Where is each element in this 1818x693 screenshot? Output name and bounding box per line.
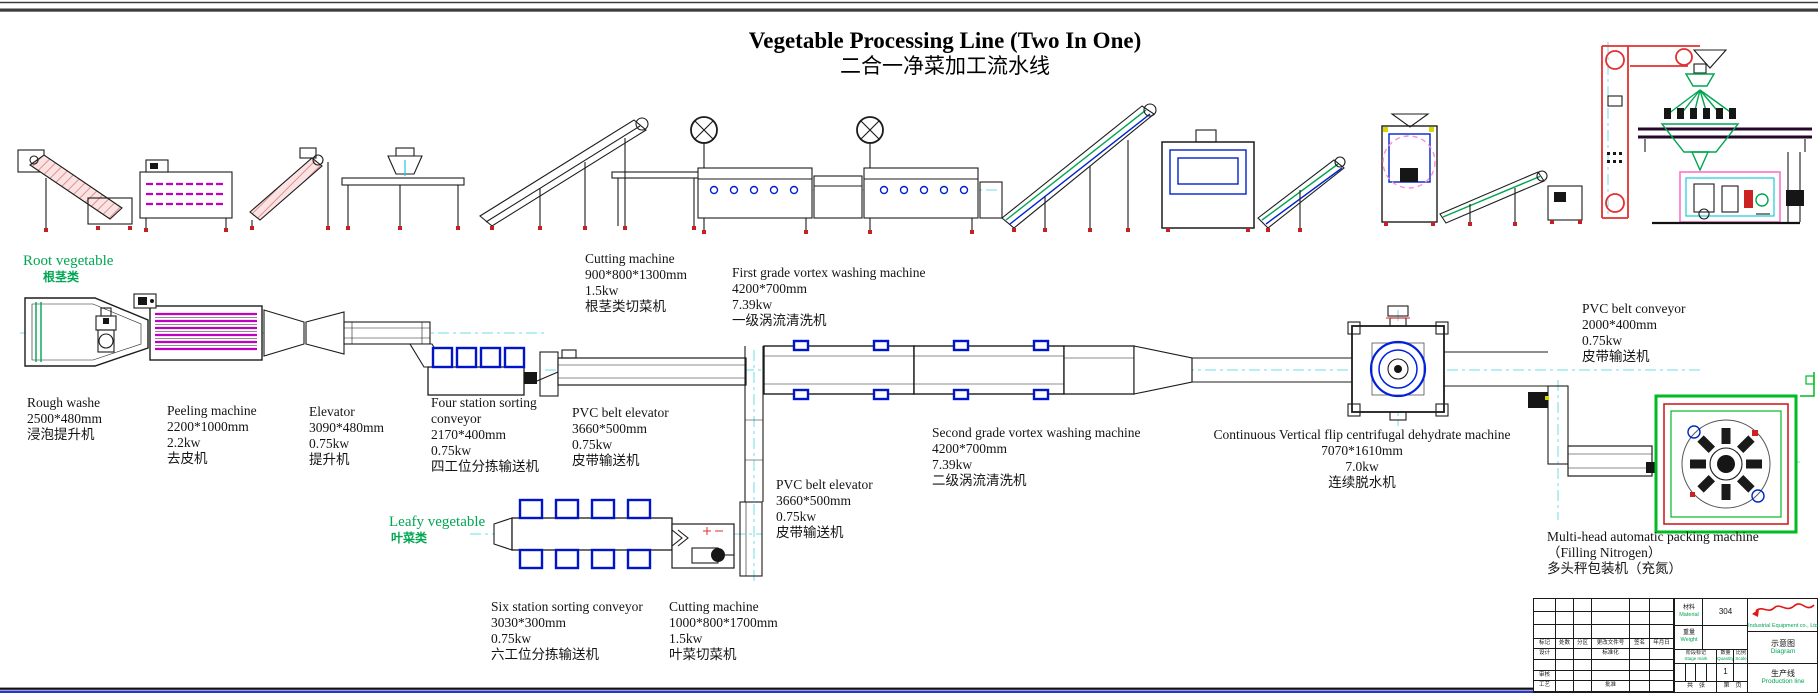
- section-label-leafy: Leafy vegetable 叶菜类: [389, 514, 485, 546]
- quantity-label-cell: 数量 Quantity: [1716, 649, 1734, 664]
- scale-value-cell: [1733, 663, 1748, 682]
- page-title: Vegetable Processing Line (Two In One) 二…: [640, 28, 1250, 80]
- scale-label-cell: 比例 Scale: [1733, 649, 1748, 664]
- weight-label-cell: 重量 Weight: [1674, 625, 1703, 650]
- weight-value-cell: [1702, 625, 1748, 650]
- stage-mark-boxes: [1674, 663, 1717, 682]
- label-cutting-machine-leafy: Cutting machine 1000*800*1700mm 1.5kw 叶菜…: [669, 599, 778, 663]
- label-second-grade-vortex-washer: Second grade vortex washing machine 4200…: [932, 425, 1140, 489]
- label-peeling-machine: Peeling machine 2200*1000mm 2.2kw 去皮机: [167, 403, 257, 467]
- label-six-station-sorting-conveyor: Six station sorting conveyor 3030*300mm …: [491, 599, 643, 663]
- label-cutting-machine-root: Cutting machine 900*800*1300mm 1.5kw 根茎类…: [585, 251, 687, 315]
- stage-mark-cell: 阶段标记 Stage mark: [1674, 649, 1717, 664]
- quantity-value-cell: 1: [1716, 663, 1734, 682]
- label-first-grade-vortex-washer: First grade vortex washing machine 4200*…: [732, 265, 925, 329]
- label-pvc-belt-elevator-leafy: PVC belt elevator 3660*500mm 0.75kw 皮带输送…: [776, 477, 873, 541]
- label-pvc-belt-elevator-root: PVC belt elevator 3660*500mm 0.75kw 皮带输送…: [572, 405, 669, 469]
- label-elevator: Elevator 3090*480mm 0.75kw 提升机: [309, 404, 384, 468]
- title-block: 标记 处数 分区 更改文件号 签名 年月日 设计 标准化 审核 工艺 批准 材料…: [1533, 598, 1818, 693]
- section-label-root: Root vegetable 根茎类: [23, 253, 113, 285]
- drawing-type-cell: 示意图 Diagram: [1747, 631, 1818, 664]
- sheet-total-cell: 共 张: [1674, 681, 1717, 693]
- material-label-cell: 材料 Material: [1674, 599, 1703, 626]
- company-cell: Industrial Equipment co., Ltd: [1747, 599, 1818, 632]
- label-four-station-sorting-conveyor: Four station sorting conveyor 2170*400mm…: [431, 395, 547, 475]
- labels-layer: Vegetable Processing Line (Two In One) 二…: [0, 0, 1818, 693]
- vegetable-processing-line-drawing: { "title": {"en": "Vegetable Processing …: [0, 0, 1818, 693]
- drawing-name-cell: 生产线 Production line: [1747, 663, 1818, 693]
- title-en: Vegetable Processing Line (Two In One): [640, 28, 1250, 53]
- material-value-cell: 304: [1702, 599, 1748, 626]
- title-zh: 二合一净菜加工流水线: [640, 53, 1250, 79]
- signature-scribble-icon: [1750, 601, 1816, 617]
- label-centrifugal-dehydrator: Continuous Vertical flip centrifugal deh…: [1212, 427, 1512, 491]
- title-block-revision-grid: 标记 处数 分区 更改文件号 签名 年月日 设计 标准化 审核 工艺 批准: [1534, 599, 1674, 692]
- label-pvc-belt-conveyor: PVC belt conveyor 2000*400mm 0.75kw 皮带输送…: [1582, 301, 1686, 365]
- label-multi-head-packing-machine: Multi-head automatic packing machine （Fi…: [1547, 529, 1759, 577]
- label-rough-washer: Rough washe 2500*480mm 浸泡提升机: [27, 395, 102, 443]
- sheet-number-cell: 第 页: [1716, 681, 1748, 693]
